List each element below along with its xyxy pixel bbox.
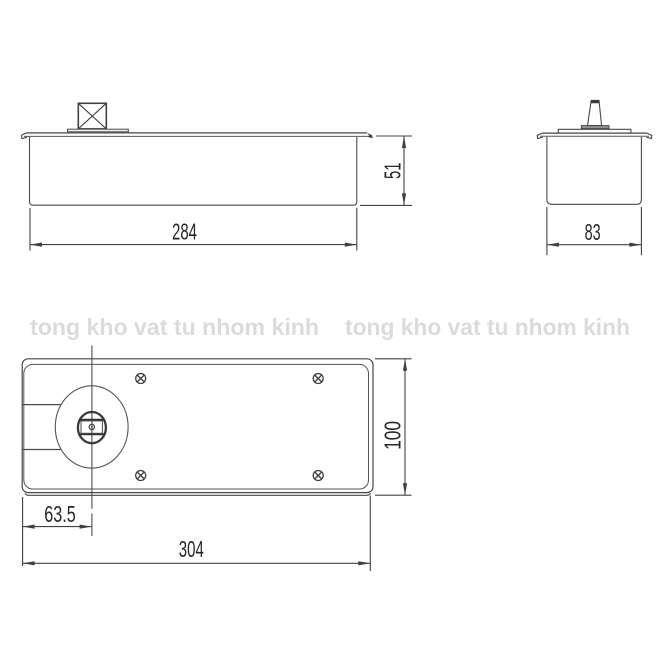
svg-text:284: 284 (172, 219, 197, 245)
svg-text:100: 100 (380, 421, 406, 450)
svg-text:tong kho vat tu nhom kinh: tong kho vat tu nhom kinh (30, 314, 319, 340)
svg-text:63.5: 63.5 (44, 501, 76, 527)
svg-text:51: 51 (379, 162, 405, 179)
svg-text:83: 83 (585, 219, 601, 245)
svg-text:tong kho vat tu nhom kinh: tong kho vat tu nhom kinh (345, 314, 630, 340)
svg-text:304: 304 (179, 536, 204, 562)
